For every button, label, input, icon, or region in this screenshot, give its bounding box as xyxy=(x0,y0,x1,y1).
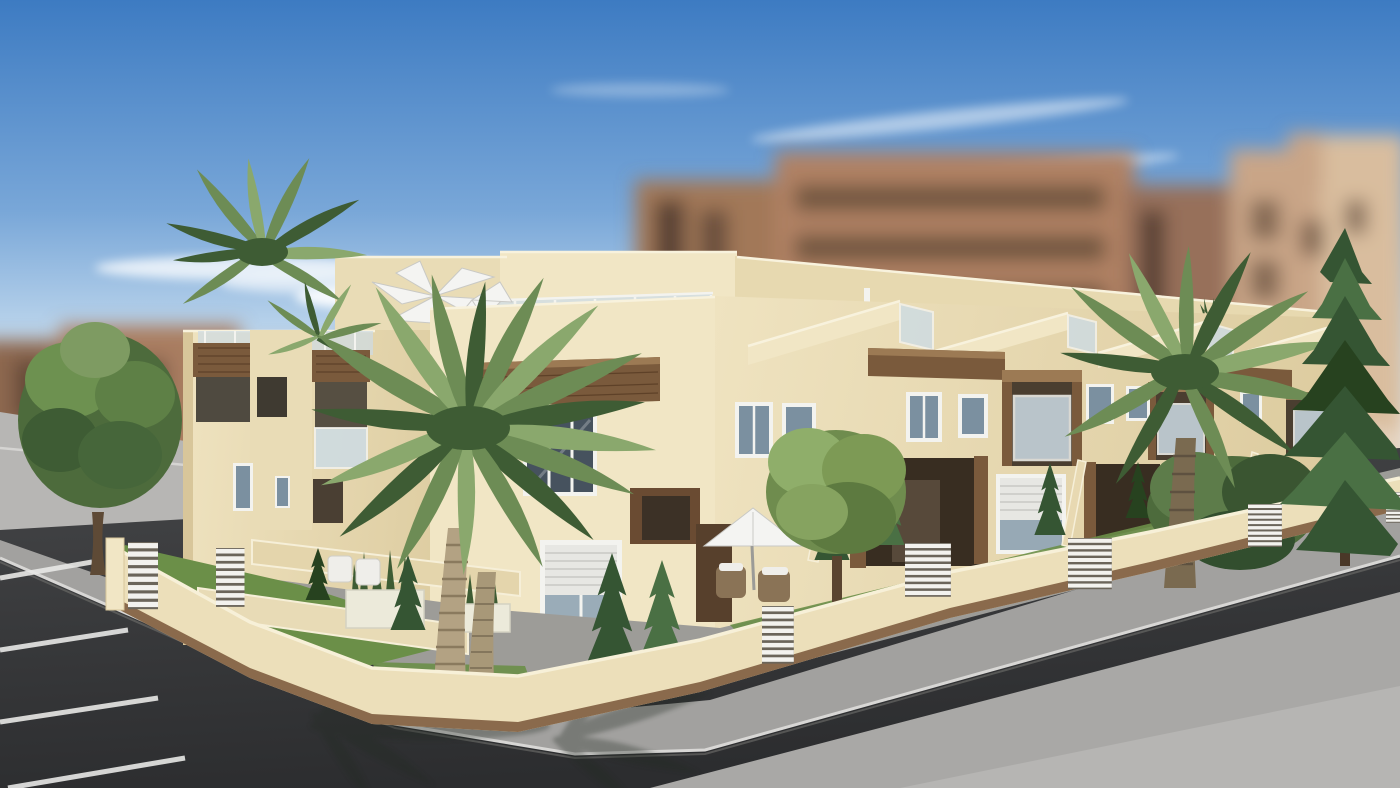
render-canvas xyxy=(0,0,1400,788)
cloud xyxy=(550,83,730,97)
left-wing-door xyxy=(313,479,343,523)
gate xyxy=(762,606,794,664)
gate xyxy=(905,543,951,597)
wall-end-post xyxy=(106,538,124,610)
pier-window-recess xyxy=(257,377,287,417)
gate xyxy=(1068,538,1112,589)
gate xyxy=(128,542,158,609)
gate xyxy=(1248,504,1282,547)
gate xyxy=(216,548,245,607)
architectural-render: Computer-generated real-estate rendering… xyxy=(0,0,1400,788)
rooftop-pergola xyxy=(193,343,255,422)
bg-building-roof-structure xyxy=(1288,133,1322,185)
tower-entrance-portal xyxy=(630,488,700,544)
tree-trunk xyxy=(832,556,842,602)
balcony-box xyxy=(1002,370,1082,466)
